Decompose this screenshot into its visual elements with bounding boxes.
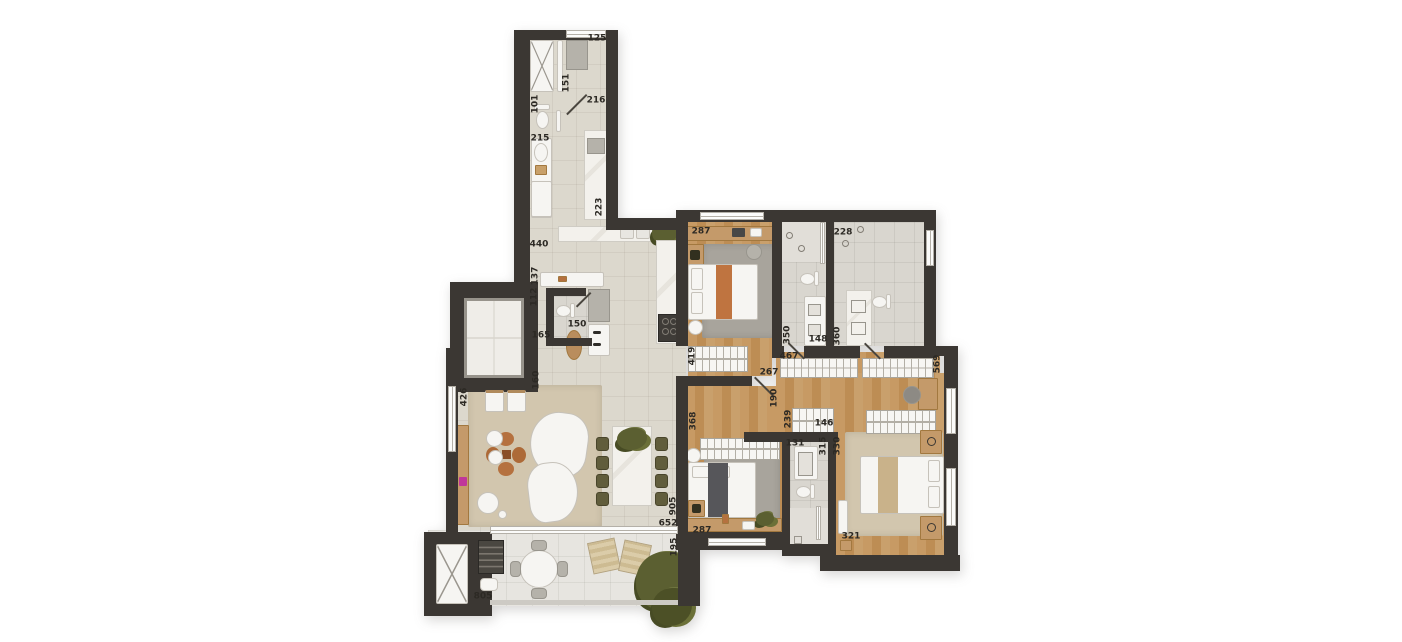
dimension-label: 315	[820, 437, 829, 456]
dimension-label: 368	[690, 412, 699, 431]
dimension-label: 569	[934, 355, 943, 374]
dimension-label: 419	[689, 347, 698, 366]
dimension-label: 350	[784, 326, 793, 345]
dimension-label: 440	[530, 241, 549, 250]
dimension-label: 137	[532, 267, 541, 286]
dimension-label: 216	[587, 97, 606, 106]
floor-plan: 1251511012162152234401371121501651604262…	[0, 0, 1402, 642]
dimension-label: 131	[786, 440, 805, 449]
dimension-label: 125	[588, 35, 607, 44]
dimension-label: 150	[568, 321, 587, 330]
labels-layer: 1251511012162152234401371121501651604262…	[0, 0, 1402, 642]
dimension-label: 190	[771, 389, 780, 408]
dimension-label: 287	[693, 527, 712, 536]
dimension-label: 195	[671, 538, 680, 557]
dimension-label: 905	[670, 497, 679, 516]
dimension-label: 360	[834, 327, 843, 346]
dimension-label: 805	[474, 593, 493, 602]
dimension-label: 112	[531, 288, 540, 307]
dimension-label: 215	[531, 135, 550, 144]
dimension-label: 267	[760, 369, 779, 378]
dimension-label: 160	[533, 371, 542, 390]
dimension-label: 148	[809, 336, 828, 345]
dimension-label: 239	[785, 410, 794, 429]
dimension-label: 287	[692, 228, 711, 237]
dimension-label: 146	[815, 420, 834, 429]
dimension-label: 426	[461, 388, 470, 407]
floor-plan-canvas: 1251511012162152234401371121501651604262…	[0, 0, 1402, 642]
dimension-label: 228	[834, 229, 853, 238]
dimension-label: 330	[834, 437, 843, 456]
dimension-label: 101	[532, 95, 541, 114]
dimension-label: 467	[780, 353, 799, 362]
dimension-label: 223	[596, 198, 605, 217]
dimension-label: 165	[532, 332, 551, 341]
dimension-label: 321	[842, 533, 861, 542]
dimension-label: 652	[659, 520, 678, 529]
dimension-label: 151	[563, 74, 572, 93]
